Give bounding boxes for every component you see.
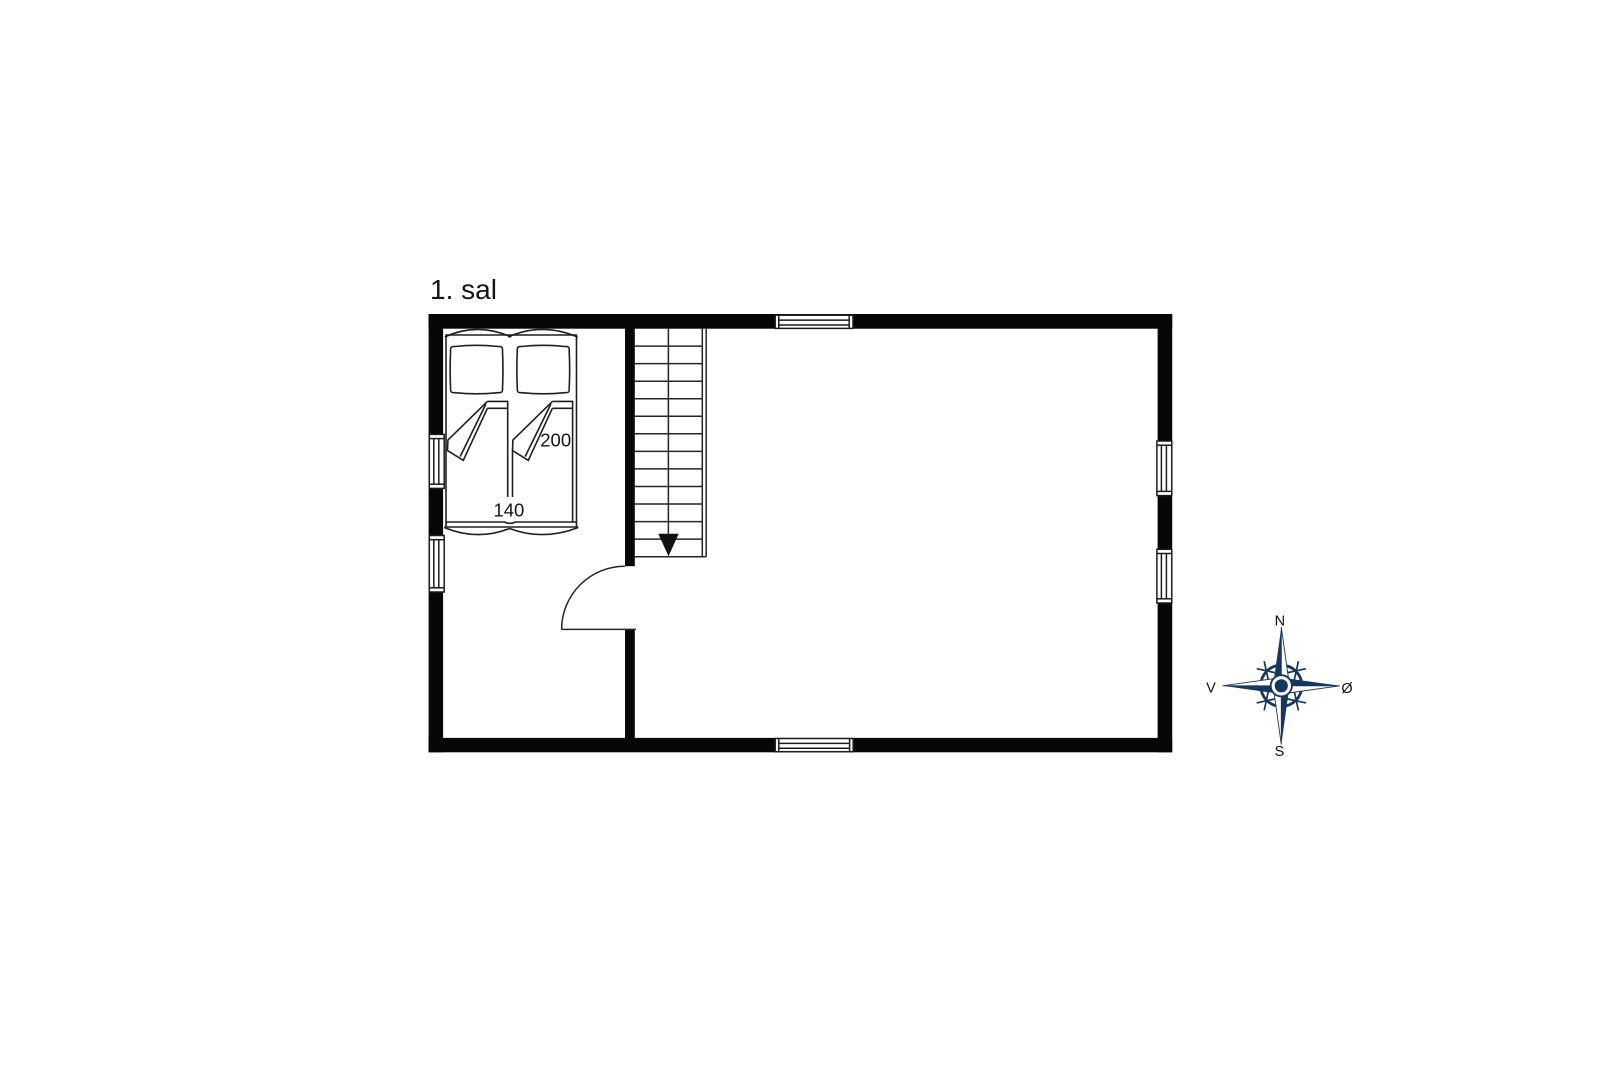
- svg-text:Ø: Ø: [1341, 681, 1352, 697]
- svg-text:N: N: [1275, 614, 1285, 630]
- svg-text:V: V: [1206, 680, 1216, 696]
- svg-text:S: S: [1275, 744, 1285, 760]
- svg-text:200: 200: [540, 429, 571, 450]
- svg-text:140: 140: [493, 499, 524, 520]
- svg-text:1. sal: 1. sal: [430, 274, 497, 305]
